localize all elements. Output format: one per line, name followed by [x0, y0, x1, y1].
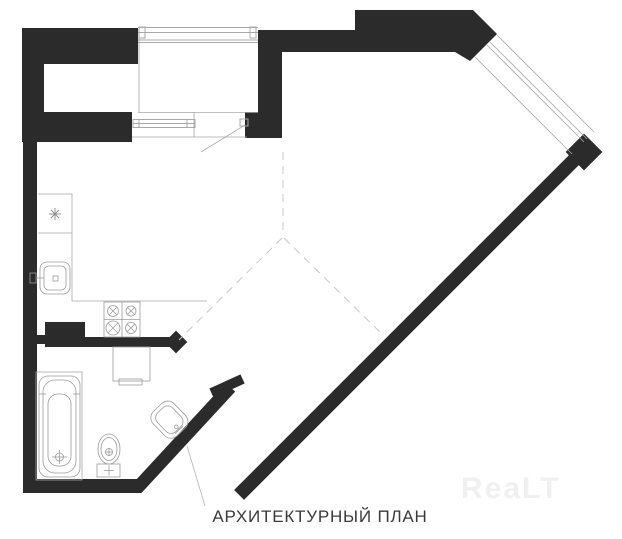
bathroom-wall-stub — [216, 381, 238, 391]
wall-kitchen-block — [45, 322, 85, 347]
wall-kitchen-bar — [85, 337, 175, 347]
bathtub — [36, 372, 82, 480]
stove — [104, 302, 140, 337]
plan-caption: АРХИТЕКТУРНЫЙ ПЛАН — [160, 507, 480, 527]
balcony-window-inner — [133, 120, 195, 128]
annotation-layer — [187, 446, 205, 506]
wall-kitchen-stub — [25, 335, 45, 344]
wall-topleft-bottom-arm — [22, 112, 132, 142]
wall-top-step — [355, 10, 470, 30]
wall-top — [258, 30, 467, 52]
walls-layer — [22, 10, 602, 493]
entrance-diagonal-wall — [244, 150, 584, 490]
balcony-window-top — [138, 27, 258, 43]
diagonal-window — [475, 35, 594, 154]
balcony-door-swing — [201, 119, 248, 152]
wall-left — [23, 140, 37, 493]
bathroom-diagonal-wall — [141, 392, 226, 484]
kitchen-counter — [38, 194, 207, 301]
realt-watermark: ReaLT — [461, 472, 560, 506]
hob-symbol — [49, 208, 61, 220]
wall-balcony-right-stub — [245, 112, 282, 138]
zone-dashed-left — [179, 238, 282, 340]
toilet — [97, 434, 120, 477]
floor-plan-svg — [0, 0, 622, 539]
door-leaf-line — [201, 125, 245, 152]
floor-plan-image: ReaLT АРХИТЕКТУРНЫЙ ПЛАН — [0, 0, 622, 539]
wall-kitchen-bar-tip — [165, 331, 188, 354]
washing-machine — [113, 347, 150, 385]
leader-line — [187, 446, 205, 506]
kitchen-fixtures-layer — [30, 194, 207, 385]
wall-bottom — [23, 479, 141, 493]
zone-boundary-layer — [179, 152, 384, 340]
zone-dashed-right — [284, 238, 384, 336]
wall-top-angled-end — [455, 10, 497, 61]
